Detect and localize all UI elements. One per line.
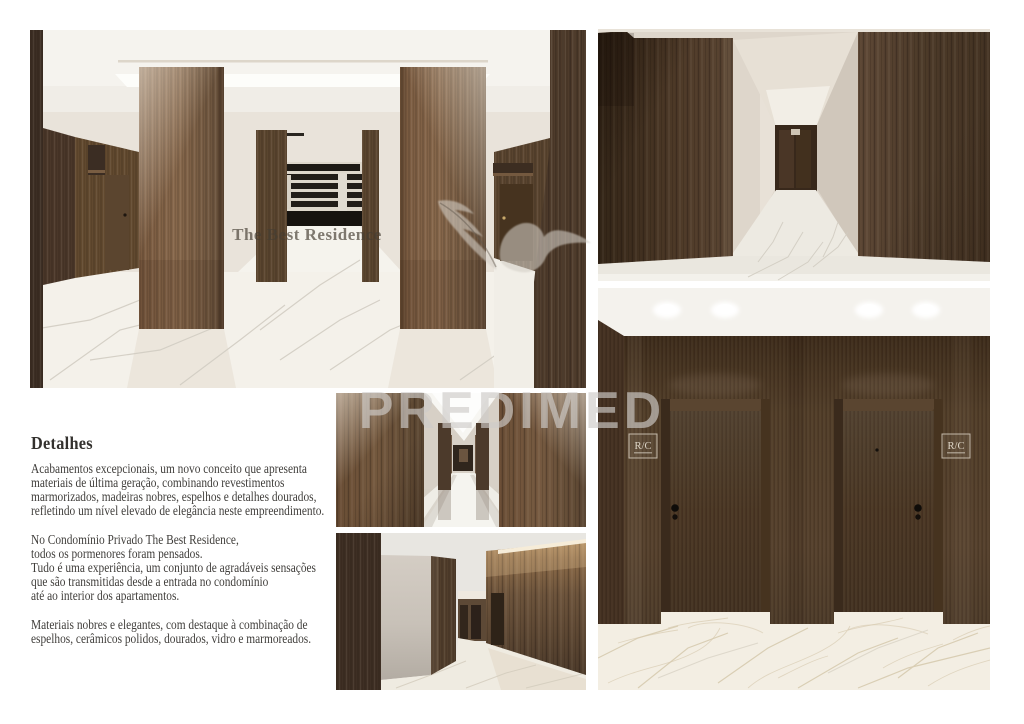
svg-text:R/C: R/C	[948, 441, 965, 452]
svg-text:The Best Residence: The Best Residence	[232, 225, 382, 244]
svg-text:R/C: R/C	[635, 441, 652, 452]
